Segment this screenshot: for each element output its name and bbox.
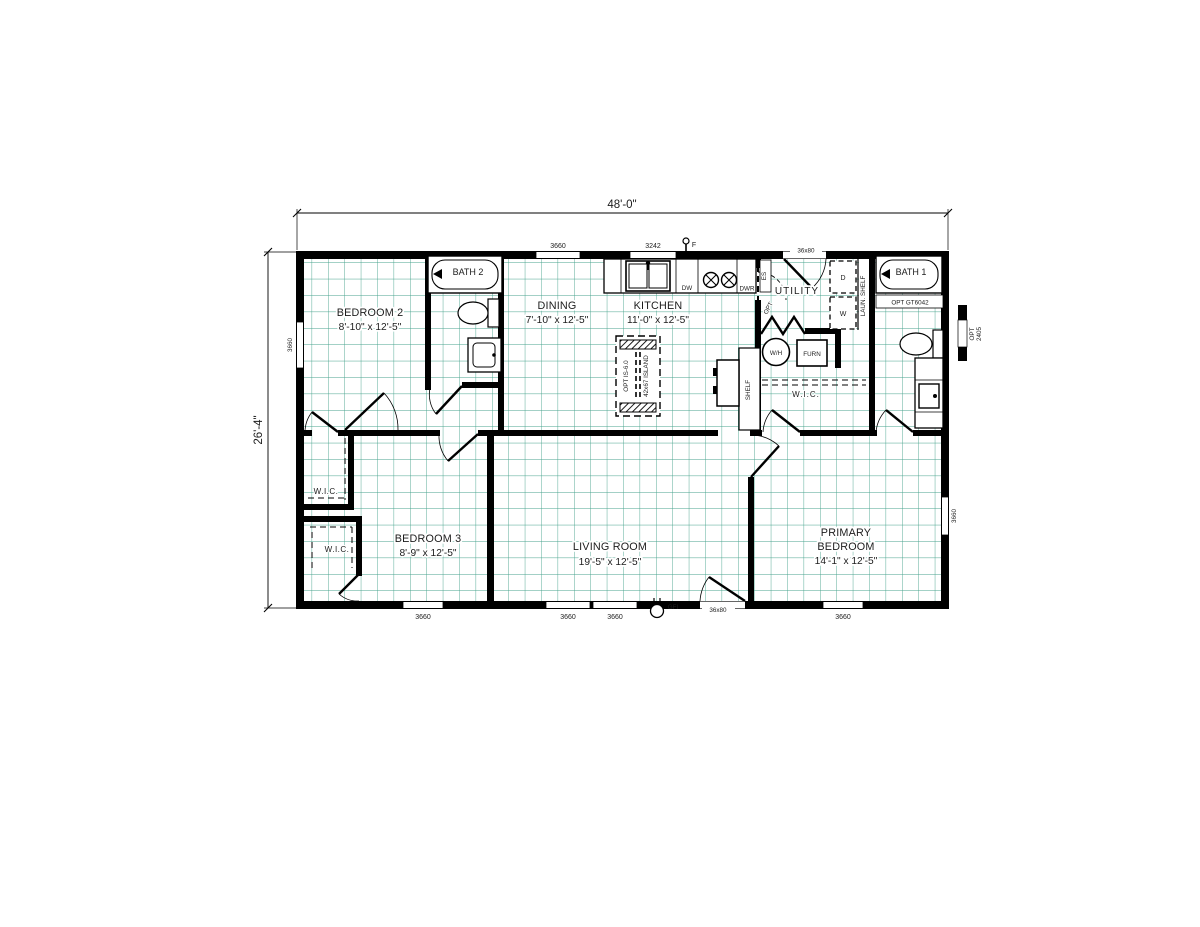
furnace: FURN [797,340,827,366]
island-option-label: OPT IS-6.0 [623,360,630,392]
overall-width-dimension: 48'-0" [607,199,636,211]
window [536,252,580,259]
wall-segment [356,522,362,576]
vanity-sink [468,338,501,372]
opt-window-2405: OPT 2405 [958,305,983,361]
door-size-label: 36x80 [709,607,727,614]
dining-size: 7'-10" x 12'-5" [526,315,589,326]
window [630,252,676,259]
bedroom2-name: BEDROOM 2 [337,307,404,319]
wall-segment [487,430,494,601]
wic-primary-label: W.I.C. [792,390,820,399]
dishwasher-label: DW [682,285,693,292]
dryer-label: D [840,275,845,282]
kitchen-size: 11'-0" x 12'-5" [627,315,689,326]
window-label: 3660 [415,614,431,621]
window-label: 3660 [560,614,576,621]
shelf-label: SHELF [745,380,752,400]
window-label: 3660 [607,614,623,621]
window-label: 3660 [951,509,958,524]
tub-option-label: OPT GT6042 [891,300,929,307]
laundry-shelf-label: LAUN. SHELF [860,276,867,317]
kitchen-sink [626,261,670,291]
island-size-label: 42x67 ISLAND [643,355,650,397]
overall-height-dimension: 26'-4" [253,415,265,444]
bath2-label: BATH 2 [453,267,484,277]
bath1-label: BATH 1 [896,267,927,277]
floor-plan-drawing: 48'-0" 26'-4" 3660 3242 3660 3660 3660 3… [0,0,1200,927]
bedroom3-name: BEDROOM 3 [395,533,462,545]
drawer-label: DWR [739,286,754,293]
wall-segment [304,504,354,510]
wic-bedroom3-label: W.I.C. [325,545,350,554]
wall-segment [348,430,354,510]
washer-label: W [840,311,847,318]
furnace-label: FURN [803,351,821,358]
vanity-sink [915,358,943,428]
wall-segment [869,259,875,430]
opt-window-label: OPT [969,327,976,340]
wall-segment [478,430,718,436]
window-label: 3242 [645,243,661,250]
bedroom2-size: 8'-10" x 12'-5" [339,322,402,333]
living-name: LIVING ROOM [573,541,647,553]
living-size: 19'-5" x 12'-5" [579,557,642,568]
water-heater-label: W/H [770,350,783,357]
electrical-label: ES [761,272,768,280]
fan-symbol: F [683,238,696,251]
water-heater: W/H [763,339,790,366]
wall-segment [748,477,754,601]
fan-label: F [692,242,696,249]
wall-segment [462,382,504,388]
wic-bedroom2-label: W.I.C. [314,487,339,496]
window-label: 3660 [835,614,851,621]
window-label: 3660 [550,243,566,250]
wall-segment [800,430,877,436]
wall-segment [304,516,362,522]
refrigerator [713,360,739,406]
kitchen-name: KITCHEN [634,300,683,312]
primary-name-line1: PRIMARY [821,527,871,539]
dining-name: DINING [538,300,577,312]
floor-plan-page: 48'-0" 26'-4" 3660 3242 3660 3660 3660 3… [0,0,1200,927]
window [546,602,590,609]
wall-segment [296,251,304,609]
opt-window-label: 2405 [976,327,983,342]
window-label: 3660 [287,338,294,353]
window [593,602,637,609]
utility-name: UTILITY [775,286,819,297]
primary-size: 14'-1" x 12'-5" [815,556,878,567]
wall-segment [913,430,941,436]
door-size-label: 36x80 [797,248,815,255]
window [297,322,304,368]
primary-name-line2: BEDROOM [817,541,874,553]
window [403,602,443,609]
kitchen-island: OPT IS-6.0 42x67 ISLAND [616,336,660,416]
window [823,602,863,609]
bedroom3-size: 8'-9" x 12'-5" [400,548,457,559]
wall-segment [296,251,949,259]
window [942,497,949,535]
gfi-label: GFI [668,604,679,611]
